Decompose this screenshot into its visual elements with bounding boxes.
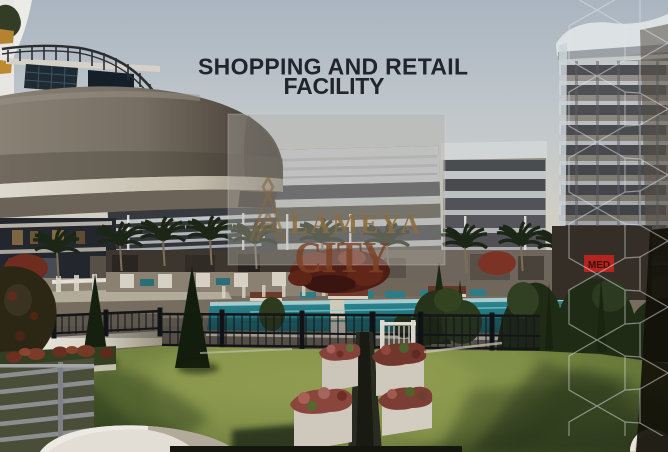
svg-text:MED: MED <box>588 260 610 271</box>
svg-text:FACILITY: FACILITY <box>284 73 385 99</box>
svg-text:CITY: CITY <box>295 233 390 282</box>
